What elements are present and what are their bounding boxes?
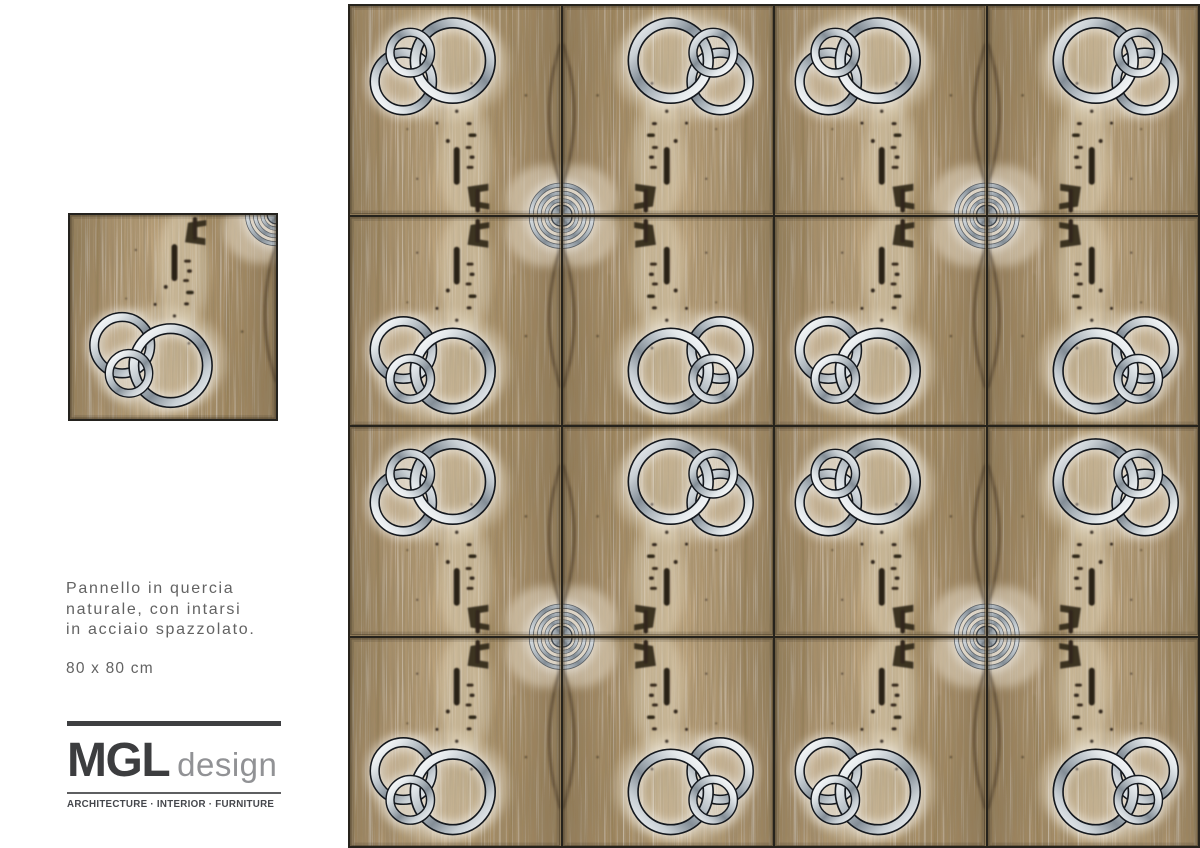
grid-tile-r2c1 xyxy=(563,427,774,636)
panel-preview xyxy=(68,213,278,421)
grid-tile-r2c3 xyxy=(988,427,1199,636)
description-line-3: in acciaio spazzolato. xyxy=(66,620,256,641)
description-line-2: naturale, con intarsi xyxy=(66,600,256,621)
panel-preview-image xyxy=(70,215,276,419)
logo-top-bar xyxy=(67,721,281,726)
grid-tile-r0c3 xyxy=(988,6,1199,215)
logo-divider xyxy=(67,792,281,794)
description-line-1: Pannello in quercia xyxy=(66,579,256,600)
brand-logo: MGL design ARCHITECTURE · INTERIOR · FUR… xyxy=(67,721,281,810)
logo-wordmark-main: MGL xyxy=(67,735,169,788)
grid-tile-r3c1 xyxy=(563,638,774,847)
grid-tile-r3c0 xyxy=(350,638,561,847)
grid-tile-r0c0 xyxy=(350,6,561,215)
grid-tile-r2c2 xyxy=(775,427,986,636)
grid-tile-r0c2 xyxy=(775,6,986,215)
panel-description: Pannello in quercia naturale, con intars… xyxy=(66,579,256,641)
panel-grid xyxy=(348,4,1200,848)
grid-tile-r1c2 xyxy=(775,217,986,426)
presentation-page: Pannello in quercia naturale, con intars… xyxy=(0,0,1200,848)
grid-tile-r2c0 xyxy=(350,427,561,636)
size-label: 80 x 80 cm xyxy=(66,660,154,678)
grid-tile-r3c3 xyxy=(988,638,1199,847)
grid-tile-r1c0 xyxy=(350,217,561,426)
grid-tile-r1c1 xyxy=(563,217,774,426)
logo-tagline: ARCHITECTURE · INTERIOR · FURNITURE xyxy=(67,798,266,810)
logo-wordmark: MGL design xyxy=(67,735,281,788)
grid-tile-r3c2 xyxy=(775,638,986,847)
grid-tile-r0c1 xyxy=(563,6,774,215)
logo-wordmark-suffix: design xyxy=(177,747,277,783)
grid-tile-r1c3 xyxy=(988,217,1199,426)
